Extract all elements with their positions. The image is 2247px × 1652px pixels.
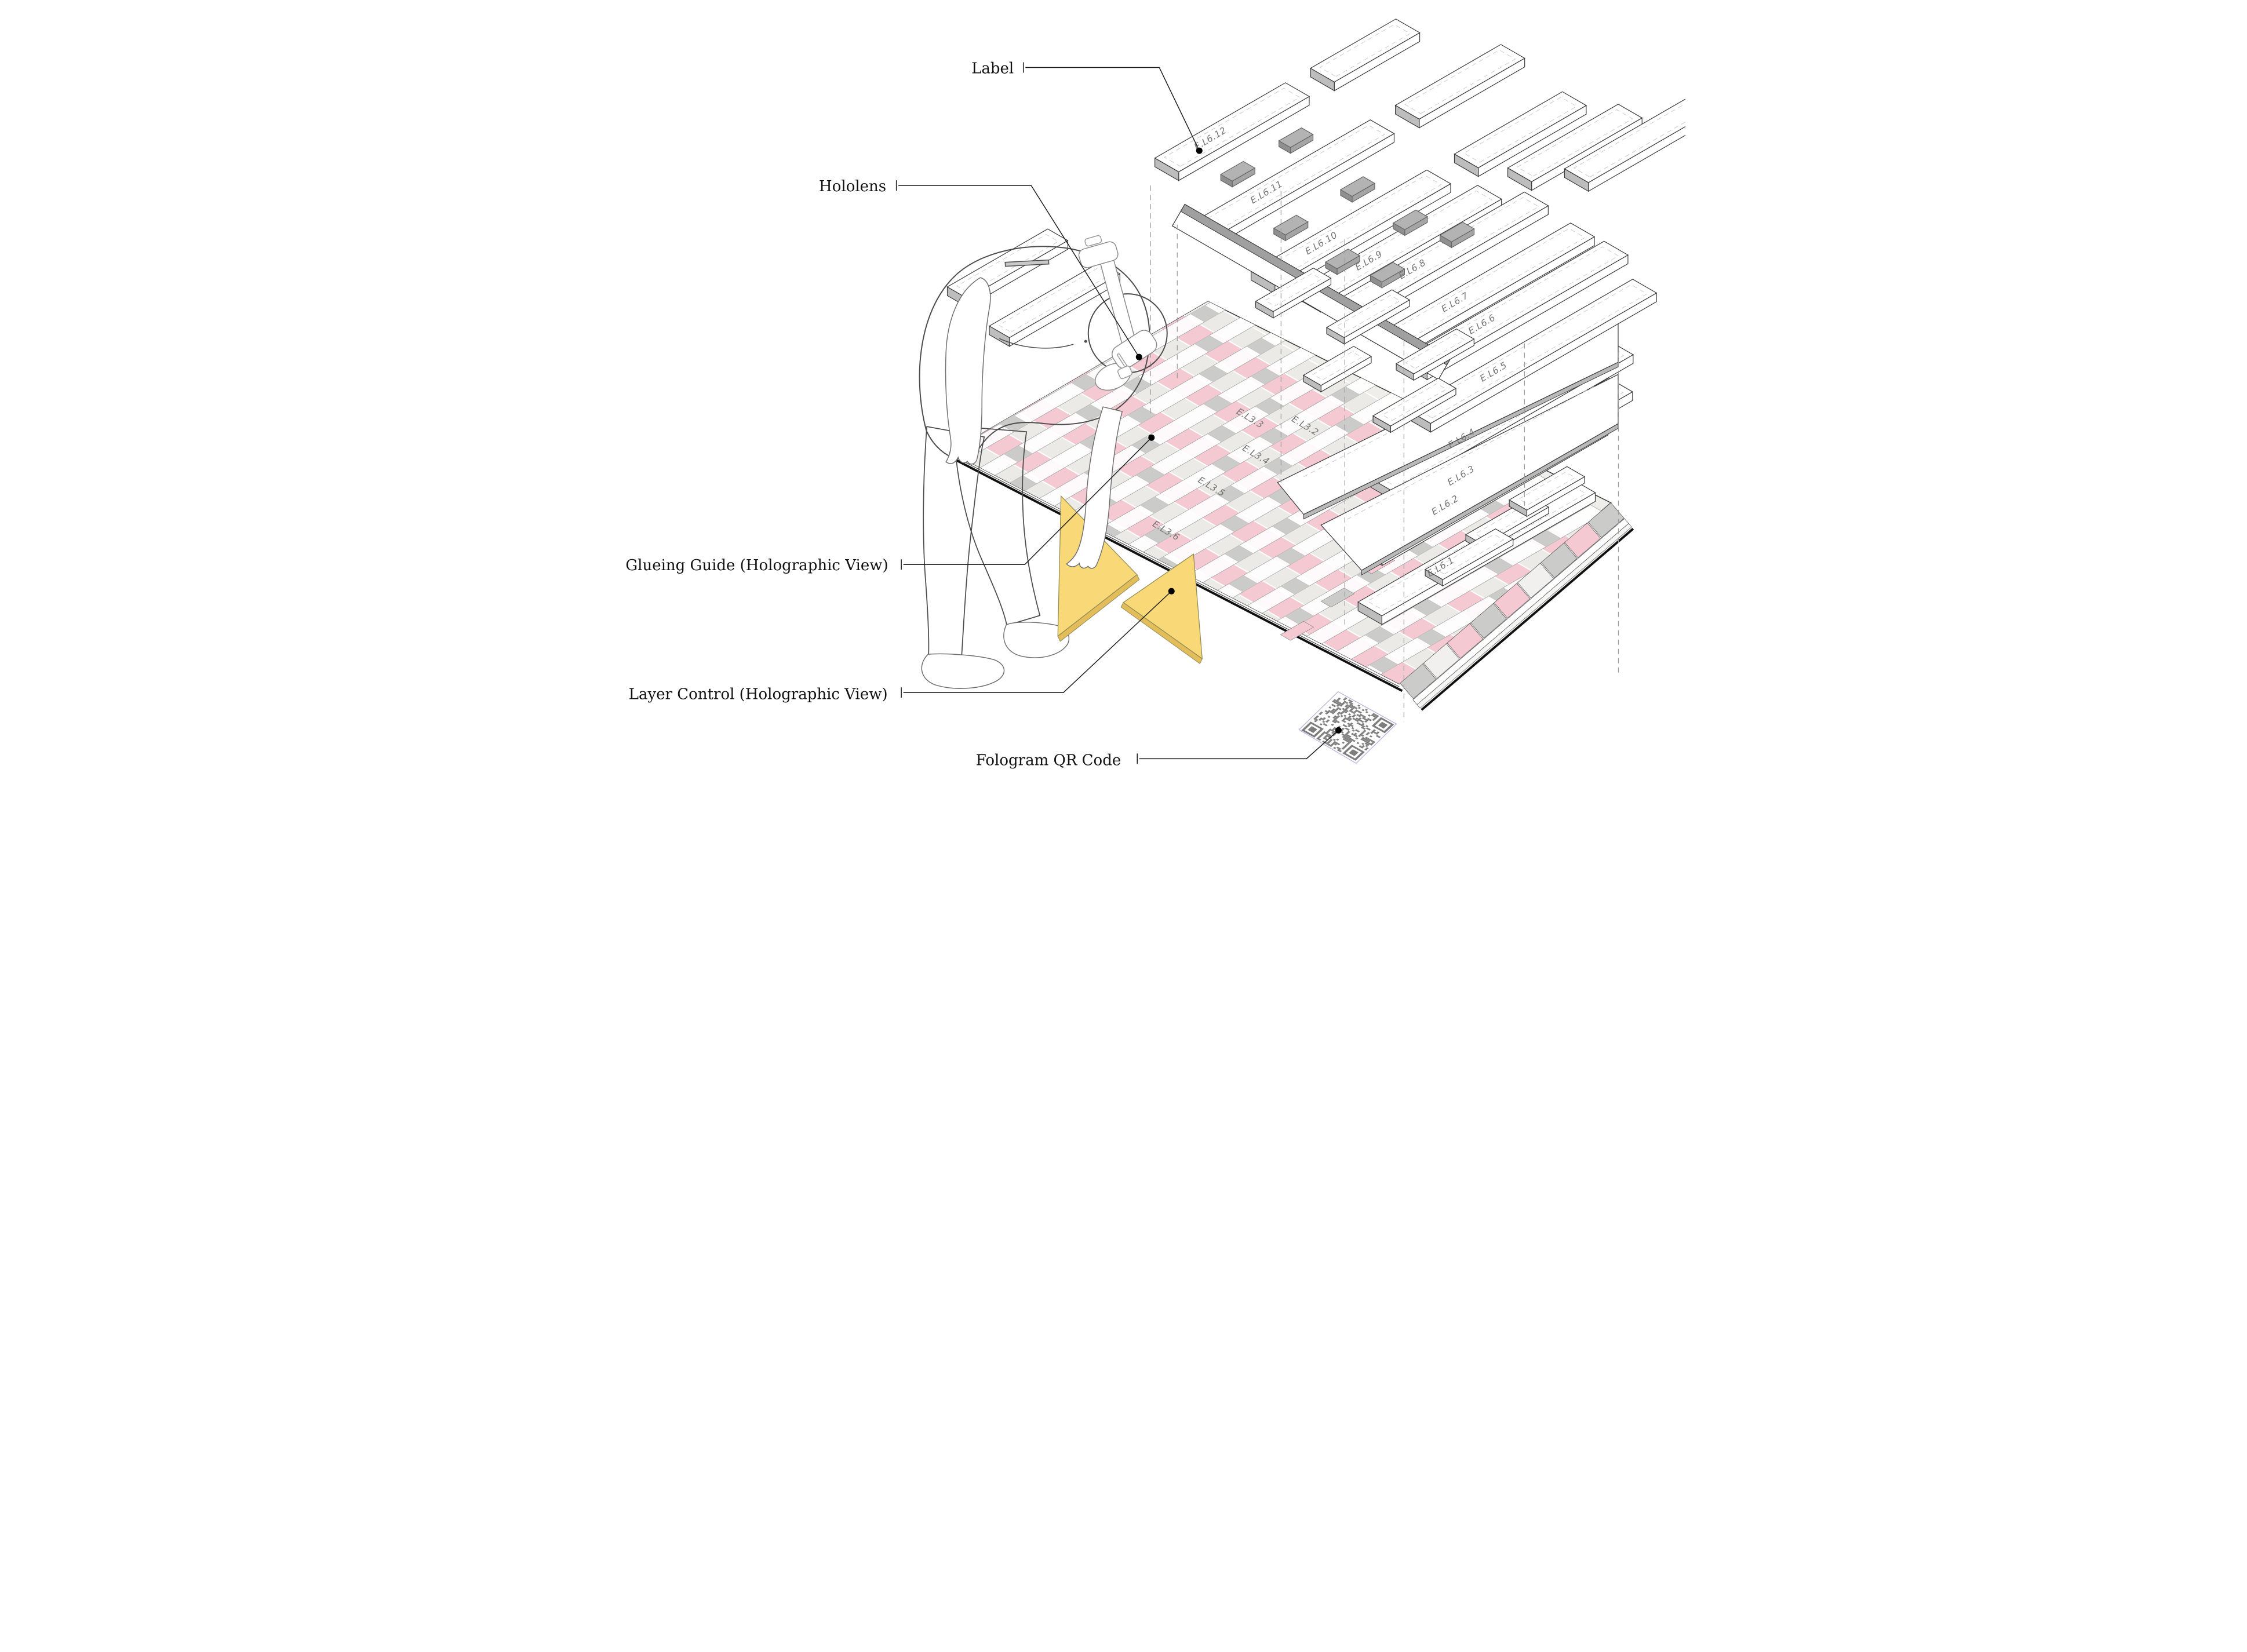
leader-dot	[1136, 354, 1142, 360]
weave-square	[960, 503, 989, 520]
callout-hololens: Hololens	[819, 178, 886, 195]
assembly-diagram: E.L6.12E.L6.11E.L6.10E.L6.9E.L6.8E.L6.7E…	[562, 0, 1685, 826]
weave-square	[1105, 614, 1134, 631]
weave-square	[1294, 668, 1322, 685]
weave-square	[1013, 505, 1041, 522]
leader-dot	[1196, 148, 1203, 154]
leader-dot	[1148, 435, 1155, 441]
weave-square	[1241, 665, 1270, 682]
plank-top	[1396, 45, 1525, 119]
leader-dot	[1168, 588, 1175, 595]
callout-glueing-guide: Glueing Guide (Holographic View)	[625, 557, 888, 574]
weave-square	[1021, 566, 1050, 582]
diagram-stage: E.L6.12E.L6.11E.L6.10E.L6.9E.L6.8E.L6.7E…	[562, 0, 1685, 826]
plank-top	[1155, 83, 1309, 172]
shirt-button	[1084, 340, 1087, 343]
callout-layer-control: Layer Control (Holographic View)	[629, 685, 888, 703]
weave-square	[880, 484, 909, 501]
callout-label: Label	[971, 60, 1014, 78]
leader-dot	[1335, 727, 1342, 734]
weave-square	[1237, 636, 1266, 652]
layer-control-triangle	[1123, 554, 1202, 659]
callout-fologram-qr: Fologram QR Code	[976, 752, 1121, 769]
leader-label	[1024, 63, 1200, 151]
weave-square	[1246, 695, 1274, 712]
foot-near	[922, 654, 1004, 688]
weave-square	[1017, 535, 1045, 552]
